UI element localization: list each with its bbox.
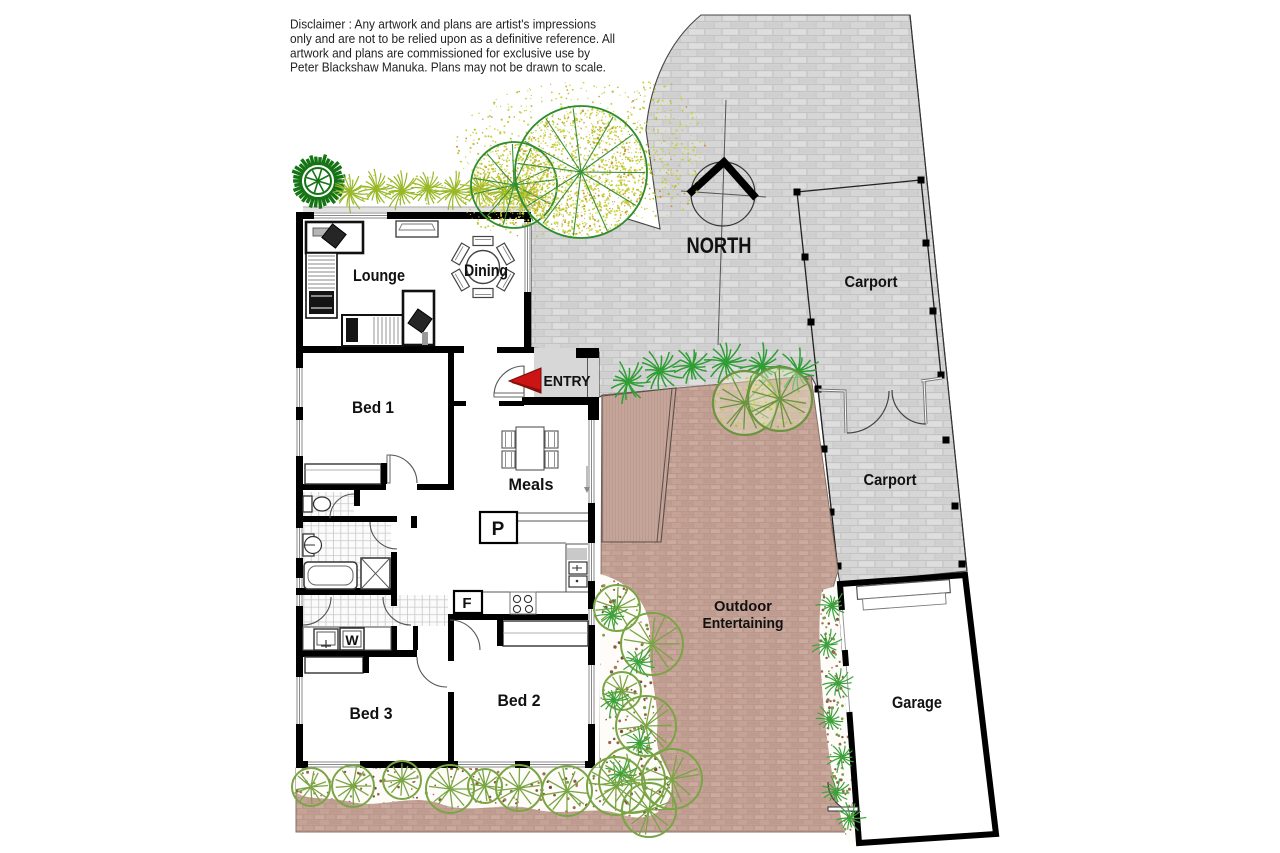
svg-text:Bed 1: Bed 1	[352, 399, 394, 417]
svg-text:Bed 3: Bed 3	[350, 705, 393, 723]
svg-text:Lounge: Lounge	[353, 267, 405, 285]
svg-text:P: P	[492, 519, 505, 540]
svg-text:Outdoor: Outdoor	[714, 598, 772, 615]
svg-text:ENTRY: ENTRY	[544, 374, 591, 390]
svg-text:Dining: Dining	[464, 262, 508, 280]
svg-text:Carport: Carport	[864, 472, 917, 489]
svg-text:NORTH: NORTH	[687, 233, 752, 258]
svg-text:Entertaining: Entertaining	[703, 615, 784, 632]
svg-text:only and are not to be relied: only and are not to be relied upon as a …	[290, 31, 615, 46]
svg-text:F: F	[462, 595, 471, 612]
svg-text:Garage: Garage	[892, 694, 942, 712]
svg-text:Carport: Carport	[845, 274, 898, 291]
svg-text:Bed 2: Bed 2	[498, 692, 541, 710]
svg-text:W: W	[345, 632, 359, 648]
svg-text:Disclaimer : Any artwork and p: Disclaimer : Any artwork and plans are a…	[290, 17, 596, 32]
svg-text:Meals: Meals	[509, 476, 554, 494]
svg-text:artwork and plans are commissi: artwork and plans are commissioned for e…	[290, 45, 590, 60]
svg-text:Peter Blackshaw Manuka. Plans: Peter Blackshaw Manuka. Plans may not be…	[290, 60, 606, 75]
